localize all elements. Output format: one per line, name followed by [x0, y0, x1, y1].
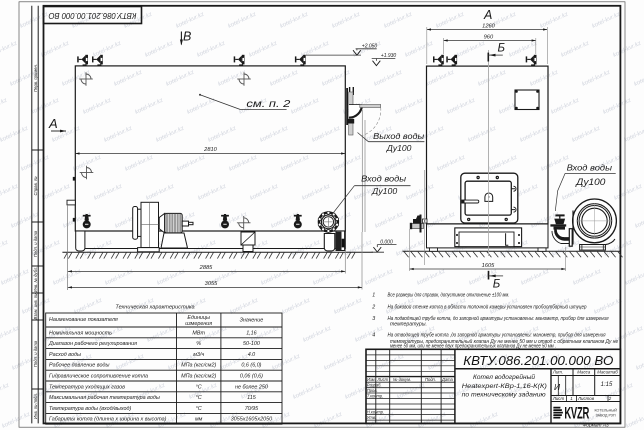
svg-text:2885: 2885 [199, 265, 213, 271]
svg-text:Техническая характеристика: Техническая характеристика [115, 304, 194, 310]
svg-text:Листов: Листов [577, 396, 595, 401]
svg-text:Подп.: Подп. [425, 377, 436, 382]
svg-text:Подп. и дата: Подп. и дата [33, 230, 38, 257]
svg-text:Инв. № дубл.: Инв. № дубл. [33, 267, 38, 293]
svg-text:На боковой стенке котла в обла: На боковой стенке котла в области топочн… [388, 304, 587, 311]
svg-text:Б: Б [493, 278, 501, 290]
svg-text:Масса: Масса [577, 370, 591, 375]
svg-text:70/95: 70/95 [245, 406, 259, 412]
svg-text:температуры.: температуры. [390, 322, 427, 328]
svg-text:ЗАВОД РЗП: ЗАВОД РЗП [596, 414, 616, 418]
svg-text:Утв.: Утв. [367, 415, 376, 420]
svg-text:2: 2 [608, 396, 612, 401]
svg-text:Ду100: Ду100 [386, 144, 412, 153]
svg-text:Перв. примен.: Перв. примен. [33, 64, 38, 92]
svg-text:Б: Б [498, 42, 506, 54]
svg-text:мм: мм [195, 417, 203, 423]
svg-text:Heatexpert-КВр-1,16-К(К): Heatexpert-КВр-1,16-К(К) [462, 383, 547, 390]
svg-text:Лист: Лист [377, 377, 389, 382]
svg-text:2810: 2810 [203, 147, 217, 153]
svg-text:Вход воды: Вход воды [567, 163, 613, 172]
svg-text:А: А [48, 116, 58, 131]
svg-text:МВт: МВт [192, 330, 205, 336]
svg-text:Пров.: Пров. [367, 388, 378, 393]
svg-text:Температура уходящих газов: Температура уходящих газов [49, 384, 125, 390]
svg-text:не более 250: не более 250 [235, 384, 268, 390]
svg-text:см. п. 2: см. п. 2 [246, 98, 290, 110]
svg-text:Наименование показателя: Наименование показателя [49, 317, 118, 323]
svg-text:измерения: измерения [185, 321, 212, 327]
svg-text:2: 2 [371, 305, 375, 311]
svg-text:Формат А3: Формат А3 [582, 422, 609, 428]
svg-text:4.0: 4.0 [248, 352, 256, 358]
svg-text:Все размеры для справок, допус: Все размеры для справок, допустимое откл… [388, 293, 510, 299]
svg-text:КВТУ.086.201.00.000 ВО: КВТУ.086.201.00.000 ВО [463, 353, 613, 368]
svg-text:Ду100: Ду100 [575, 177, 606, 188]
svg-text:°С: °С [196, 406, 202, 412]
svg-text:Гидравлическое сопротивление к: Гидравлическое сопротивление котла [49, 374, 148, 380]
svg-text:Номинальная мощность: Номинальная мощность [49, 330, 112, 336]
svg-text:Справ. №: Справ. № [33, 176, 38, 195]
svg-text:1,16: 1,16 [246, 330, 257, 336]
svg-text:№ докум.: № докум. [393, 377, 411, 382]
svg-text:+1.930: +1.930 [381, 53, 397, 59]
svg-text:В: В [183, 30, 191, 44]
svg-text:Вход воды: Вход воды [361, 174, 406, 183]
svg-text:Изм.: Изм. [367, 377, 376, 382]
svg-text:Температура воды (вход/выход): Температура воды (вход/выход) [49, 406, 132, 412]
svg-text:+2.050: +2.050 [362, 43, 378, 49]
svg-text:КВТУ.086.201.00.000 ВО: КВТУ.086.201.00.000 ВО [48, 11, 137, 20]
svg-text:1605: 1605 [482, 263, 495, 269]
svg-text:Масштаб: Масштаб [597, 370, 618, 375]
svg-text:Дата: Дата [441, 377, 454, 382]
svg-text:Лист: Лист [552, 396, 565, 401]
svg-text:960: 960 [484, 35, 494, 41]
svg-text:Н.контр.: Н.контр. [367, 410, 384, 415]
svg-text:Ду100: Ду100 [371, 187, 398, 196]
svg-text:°С: °С [196, 395, 202, 401]
svg-text:Выход воды: Выход воды [373, 132, 424, 141]
svg-text:И: И [554, 382, 561, 392]
svg-text:Значение: Значение [240, 318, 264, 324]
svg-text:Расход воды: Расход воды [49, 352, 81, 358]
svg-text:Максимальная рабочая температу: Максимальная рабочая температура воды [49, 395, 160, 401]
svg-text:На отводящей трубе котла ,до з: На отводящей трубе котла ,до запорной ар… [388, 332, 606, 339]
svg-text:%: % [196, 341, 201, 347]
svg-text:м3/ч: м3/ч [193, 352, 204, 358]
svg-text:3055х1605х2050: 3055х1605х2050 [231, 417, 272, 423]
svg-text:1260: 1260 [482, 23, 495, 29]
svg-text:Взам. инв. №: Взам. инв. № [33, 293, 38, 319]
svg-text:Лит.: Лит. [552, 370, 563, 375]
svg-text:Габариты котла (длинна х ширин: Габариты котла (длинна х ширина х высота… [49, 417, 167, 423]
svg-text:1: 1 [372, 293, 375, 299]
svg-text:Рабочее давление воды: Рабочее давление воды [49, 363, 109, 369]
svg-text:Котел водогрейный: Котел водогрейный [473, 373, 535, 381]
svg-text:50-100: 50-100 [243, 341, 260, 347]
svg-text:°С: °С [196, 384, 202, 390]
svg-text:Разраб.: Разраб. [367, 383, 382, 388]
svg-text:МПа (кгс/см2): МПа (кгс/см2) [181, 374, 216, 380]
svg-text:Подп. и дата: Подп. и дата [33, 340, 38, 367]
svg-text:МПа (кгс/см2): МПа (кгс/см2) [181, 363, 216, 369]
svg-text:4: 4 [372, 333, 375, 339]
svg-text:по техническому заданию: по техническому заданию [462, 390, 546, 398]
svg-text:3055: 3055 [205, 281, 218, 287]
svg-text:Инв. № подл.: Инв. № подл. [33, 393, 38, 419]
svg-text:0,6 (6,0): 0,6 (6,0) [241, 363, 261, 369]
svg-text:А: А [483, 8, 492, 22]
svg-text:115: 115 [247, 395, 257, 401]
svg-text:KVZR: KVZR [564, 405, 589, 423]
svg-text:Т.контр.: Т.контр. [367, 393, 384, 398]
svg-text:3: 3 [372, 316, 375, 322]
svg-text:0,06 (0,6): 0,06 (0,6) [240, 374, 263, 380]
svg-text:1:15: 1:15 [601, 382, 613, 388]
svg-text:КОТЕЛЬНЫЙ: КОТЕЛЬНЫЙ [595, 409, 618, 413]
svg-text:Диапазон рабочего регулировани: Диапазон рабочего регулирования [48, 341, 137, 347]
